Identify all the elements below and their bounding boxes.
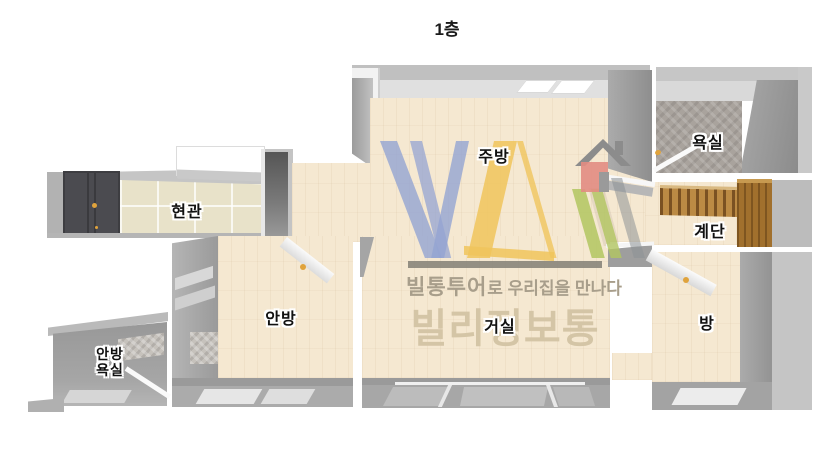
master-bathroom-label-line1: 안방 [96,346,124,362]
living-room-label: 거실 [484,313,515,337]
bathroom-top-wall [656,67,812,81]
master-bedroom-label: 안방 [265,305,296,329]
balcony-pane [553,387,595,406]
house-chimney-icon [615,141,623,155]
kitchen-label: 주방 [478,143,509,167]
stairs-label: 계단 [694,218,725,242]
left-outer-wedge [28,398,64,412]
watermark-bar [408,261,602,268]
master-bathroom-label-line2: 욕실 [96,362,124,378]
balcony-sill [395,382,585,385]
floor-plan: 1층 [0,0,840,472]
hall-doorway-edge [261,149,265,241]
entrance-label: 현관 [171,198,202,222]
bathroom-outer-wall [798,67,812,173]
master-bathroom-slab [62,390,132,403]
small-room-right-wall [740,252,772,382]
hall-doorway-opening [264,152,288,238]
master-bedroom-door-handle-icon [300,264,306,270]
hall-floor [292,163,372,242]
front-door-handle-icon [92,203,97,208]
corner-floor-patch [612,353,653,380]
stairs-outer-wall [772,180,812,247]
kitchen-top-wall [352,65,650,80]
house-icon [575,139,631,195]
small-room-balcony-slab [671,388,746,405]
front-door [63,171,120,235]
small-room-label: 방 [699,310,715,334]
master-bath-threshold [190,332,218,364]
master-bathroom-label: 안방 욕실 [96,346,124,378]
master-bedroom-balcony-slab [196,389,263,404]
bathroom-ceiling [656,81,764,101]
balcony-pane [460,387,548,406]
master-bedroom-balcony-slab [261,389,316,404]
bathroom-label: 욕실 [692,129,723,153]
master-bedroom-bottom-wall [172,378,353,386]
small-room-door-handle-icon [683,277,689,283]
stairs-wood-panel [737,179,772,247]
front-door-lock-icon [95,226,98,229]
stairs-steps [660,185,737,217]
entrance-left-wall [47,172,63,237]
plan-title: 1층 [434,15,459,40]
house-door-icon [599,172,609,192]
small-room-outer-wall [772,252,812,410]
